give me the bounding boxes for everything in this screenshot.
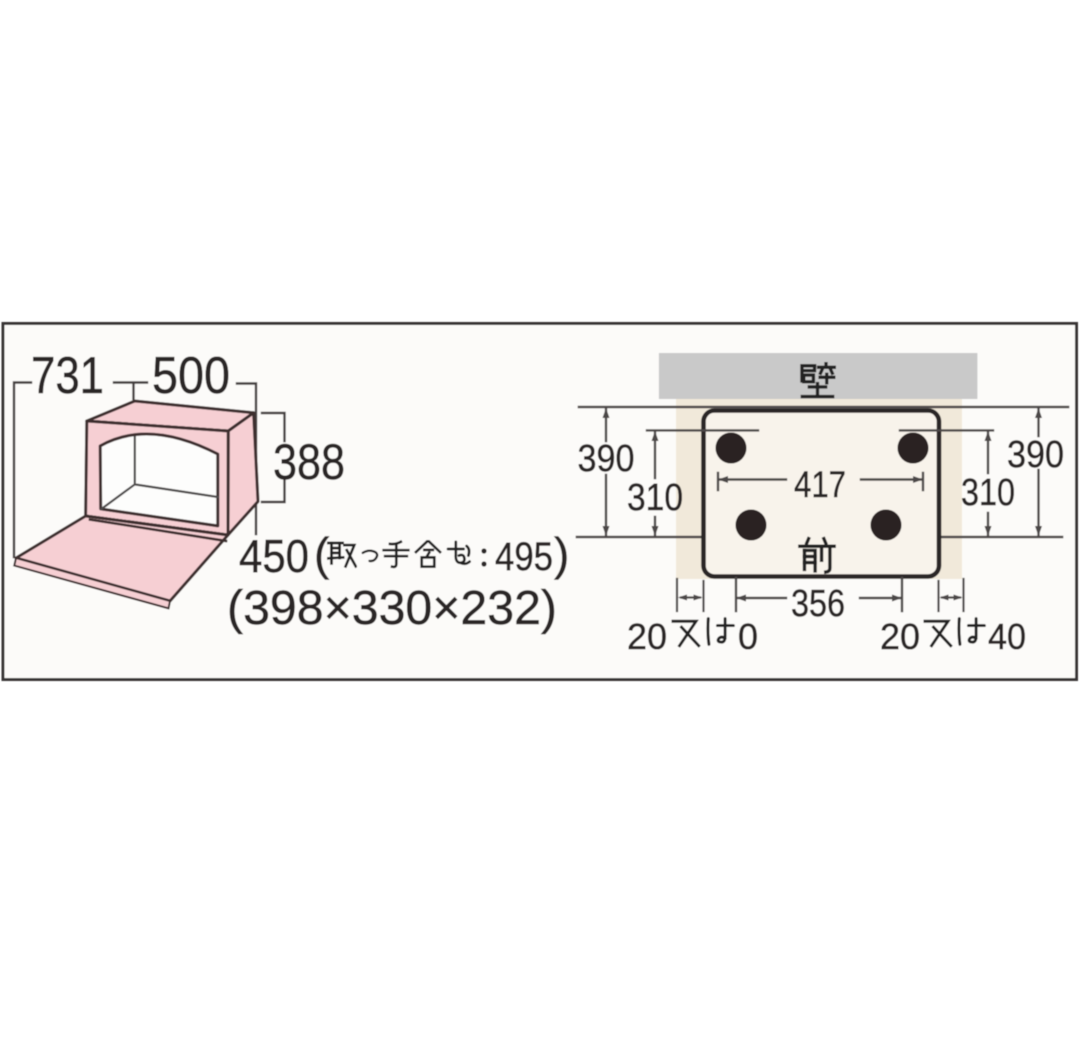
svg-text:390: 390 bbox=[578, 438, 635, 480]
svg-text:(: ( bbox=[314, 528, 330, 580]
svg-text:310: 310 bbox=[627, 477, 683, 519]
svg-text:417: 417 bbox=[794, 464, 846, 505]
svg-text:(398×330×232): (398×330×232) bbox=[227, 582, 557, 635]
svg-text:390: 390 bbox=[1007, 434, 1064, 476]
svg-text:20: 20 bbox=[880, 616, 920, 657]
svg-text:450: 450 bbox=[239, 530, 309, 582]
svg-text:388: 388 bbox=[273, 434, 345, 490]
svg-text:310: 310 bbox=[961, 472, 1015, 514]
svg-text:495: 495 bbox=[495, 535, 553, 579]
svg-text:356: 356 bbox=[791, 583, 845, 625]
svg-text:20: 20 bbox=[627, 616, 667, 657]
svg-text:500: 500 bbox=[152, 347, 230, 405]
svg-text:): ) bbox=[554, 528, 569, 580]
svg-text:731: 731 bbox=[31, 347, 104, 405]
svg-text:0: 0 bbox=[738, 616, 758, 657]
svg-text:40: 40 bbox=[988, 616, 1026, 657]
